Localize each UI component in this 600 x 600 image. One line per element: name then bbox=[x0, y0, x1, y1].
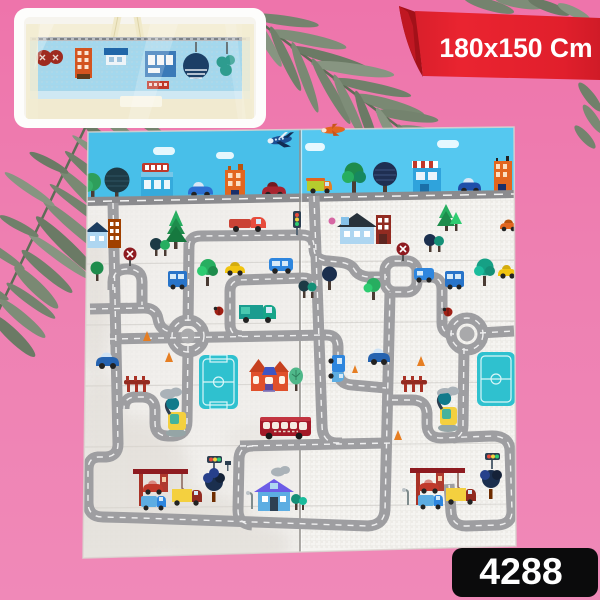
svg-text:4288: 4288 bbox=[479, 550, 562, 592]
svg-text:180x150 Cm: 180x150 Cm bbox=[439, 33, 592, 63]
